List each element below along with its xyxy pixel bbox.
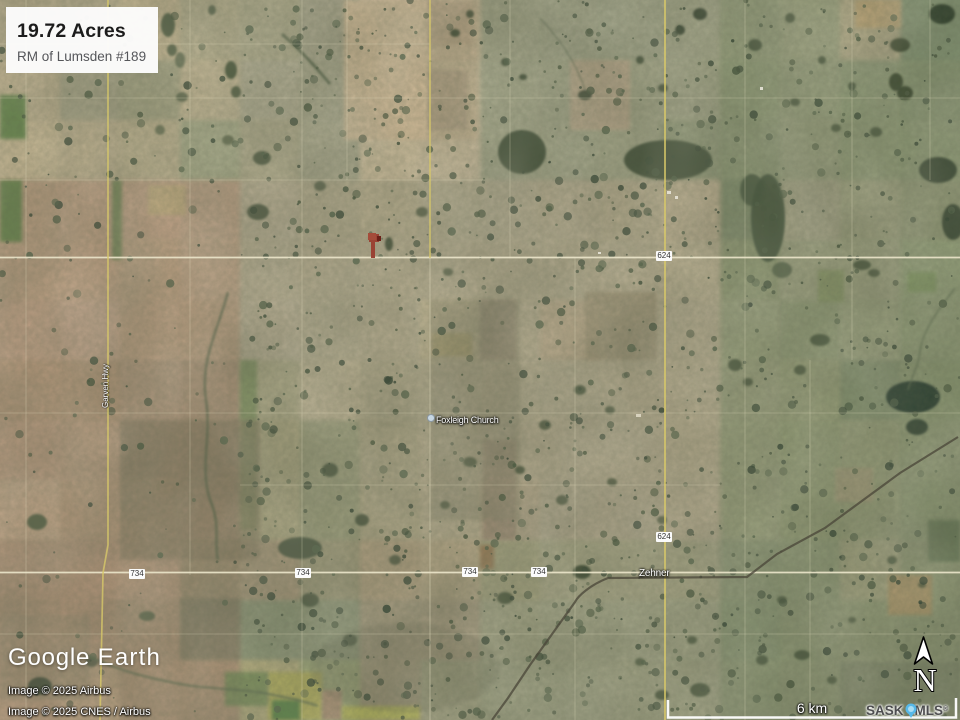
svg-text:N: N [913,662,936,696]
